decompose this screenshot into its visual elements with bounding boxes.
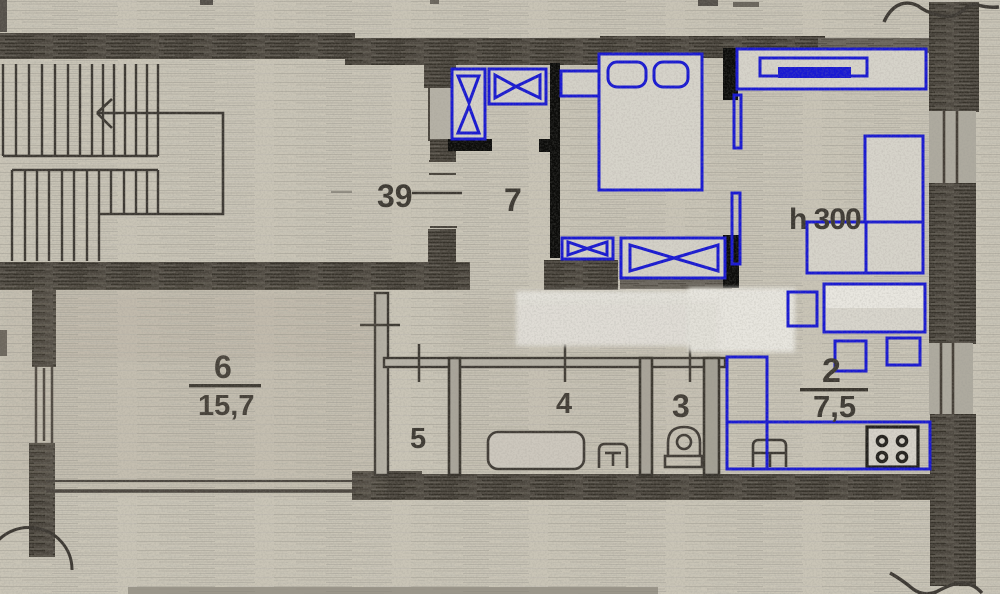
svg-text:h 300: h 300 <box>789 203 861 236</box>
svg-text:7: 7 <box>504 182 522 218</box>
svg-text:5: 5 <box>410 423 426 455</box>
svg-text:2: 2 <box>822 352 841 390</box>
svg-text:39: 39 <box>377 178 413 214</box>
svg-text:7,5: 7,5 <box>813 389 856 424</box>
